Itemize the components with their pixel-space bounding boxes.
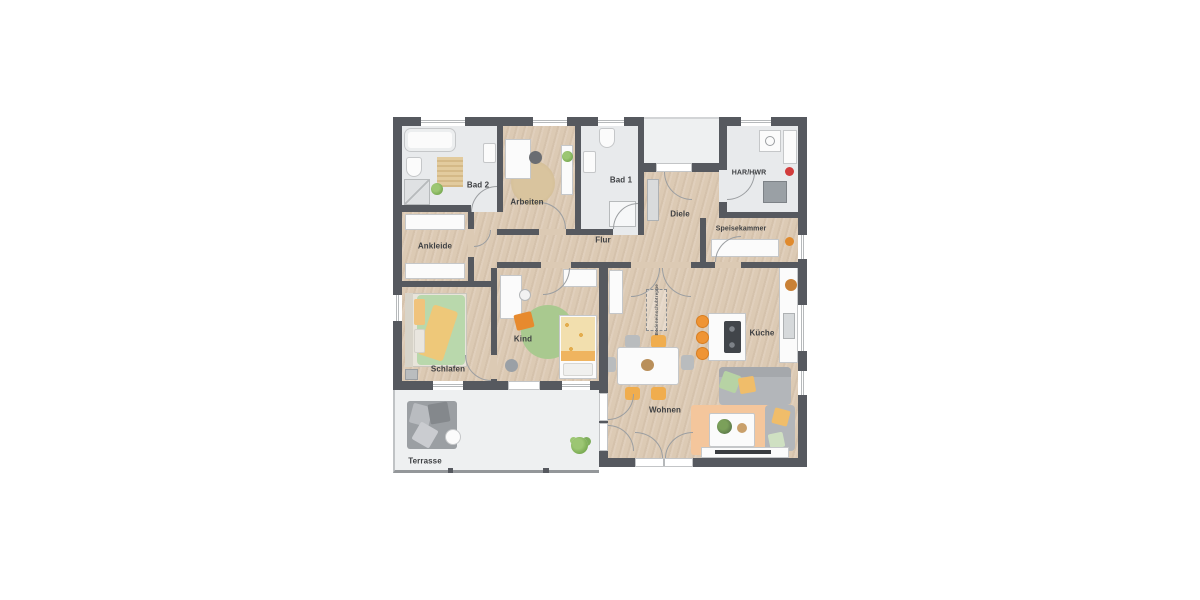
terrace-post xyxy=(543,468,549,473)
bath-mat xyxy=(437,157,463,187)
bath1-sink xyxy=(583,151,596,173)
washer-door-icon xyxy=(765,136,775,146)
wall xyxy=(719,212,798,218)
french-door xyxy=(599,423,608,451)
bed-headboard xyxy=(405,293,413,367)
toilet xyxy=(599,128,615,148)
terrace-door xyxy=(508,381,540,390)
room-label-har-hwr: HAR/HWR xyxy=(732,170,767,177)
room-label-kind: Kind xyxy=(514,335,532,344)
door-opening xyxy=(613,229,638,235)
cooktop xyxy=(724,321,741,353)
room-label-bad1: Bad 1 xyxy=(610,176,632,185)
storage-basket xyxy=(785,237,794,246)
room-label-diele: Diele xyxy=(670,210,690,219)
nightstand xyxy=(405,369,418,380)
hall-wardrobe xyxy=(647,179,659,221)
window xyxy=(533,117,567,126)
bar-stool xyxy=(696,347,709,360)
wall xyxy=(700,218,706,262)
utility-counter xyxy=(783,130,797,164)
wardrobe xyxy=(405,214,465,230)
plant-icon xyxy=(571,437,588,454)
wall xyxy=(402,281,491,287)
bath2-sink xyxy=(483,143,496,163)
plant-icon xyxy=(717,419,732,434)
shower xyxy=(404,179,430,205)
kitchen-sink xyxy=(783,313,795,339)
room-label-bad2: Bad 2 xyxy=(467,181,489,190)
room-label-ankleide: Ankleide xyxy=(418,242,452,251)
wall xyxy=(575,126,581,235)
window xyxy=(798,371,807,395)
plant-icon xyxy=(562,151,573,162)
pillow xyxy=(563,363,593,376)
coffee-table xyxy=(709,413,755,447)
kids-chair xyxy=(519,289,531,301)
table-centerpiece xyxy=(641,359,654,371)
kids-bed-stripe xyxy=(561,351,595,361)
laundry-basket-red xyxy=(785,167,794,176)
tv-screen xyxy=(715,450,771,454)
window xyxy=(798,305,807,351)
door-opening xyxy=(491,355,497,379)
window xyxy=(562,381,590,390)
teddy-bear xyxy=(505,359,518,372)
wardrobe xyxy=(405,263,465,279)
window xyxy=(741,117,771,126)
cushion xyxy=(427,401,450,424)
pillow xyxy=(414,329,425,353)
window xyxy=(393,295,402,321)
attic-stairs-box: Bodeneinschubtreppe xyxy=(646,289,667,331)
terrace-table xyxy=(445,429,461,445)
door-opening xyxy=(719,170,727,202)
window xyxy=(598,117,624,126)
dining-chair xyxy=(651,387,666,400)
entrance-door xyxy=(656,163,692,172)
terrace-post xyxy=(448,468,453,473)
pillow xyxy=(414,299,425,325)
french-door xyxy=(599,393,608,421)
office-chair xyxy=(529,151,542,164)
room-label-speisekammer: Speisekammer xyxy=(716,226,767,233)
window xyxy=(798,235,807,259)
plant-icon xyxy=(431,183,443,195)
door-opening xyxy=(539,229,566,235)
vase xyxy=(737,423,747,433)
entrance-porch xyxy=(644,117,719,163)
wall xyxy=(497,126,503,212)
utility-box xyxy=(763,181,787,203)
cushion xyxy=(738,376,757,395)
french-door xyxy=(635,458,693,467)
attic-stairs-label: Bodeneinschubtreppe xyxy=(654,284,659,335)
wall xyxy=(798,117,807,467)
bar-stool xyxy=(696,315,709,328)
wall xyxy=(599,458,807,467)
room-label-kueche: Küche xyxy=(750,329,775,338)
kitchen-plant-pot xyxy=(785,279,797,291)
tall-cabinet xyxy=(609,270,623,314)
toilet xyxy=(406,157,422,177)
wall xyxy=(393,117,402,390)
floor-plan: Bodeneinschubtreppe Bad 2 Arbeiten Bad 1… xyxy=(393,117,807,475)
dining-chair xyxy=(681,355,694,370)
room-label-wohnen: Wohnen xyxy=(649,406,681,415)
window xyxy=(433,381,463,390)
window xyxy=(421,117,465,126)
floor-plan-page: Bodeneinschubtreppe Bad 2 Arbeiten Bad 1… xyxy=(0,0,1200,600)
room-label-flur: Flur xyxy=(595,236,611,245)
door-opening xyxy=(715,262,741,268)
bar-stool xyxy=(696,331,709,344)
room-label-schlafen: Schlafen xyxy=(431,365,465,374)
desk xyxy=(505,139,531,179)
wall xyxy=(638,117,644,235)
room-label-arbeiten: Arbeiten xyxy=(510,198,543,207)
bathtub xyxy=(404,128,456,152)
room-label-terrasse: Terrasse xyxy=(408,457,442,466)
